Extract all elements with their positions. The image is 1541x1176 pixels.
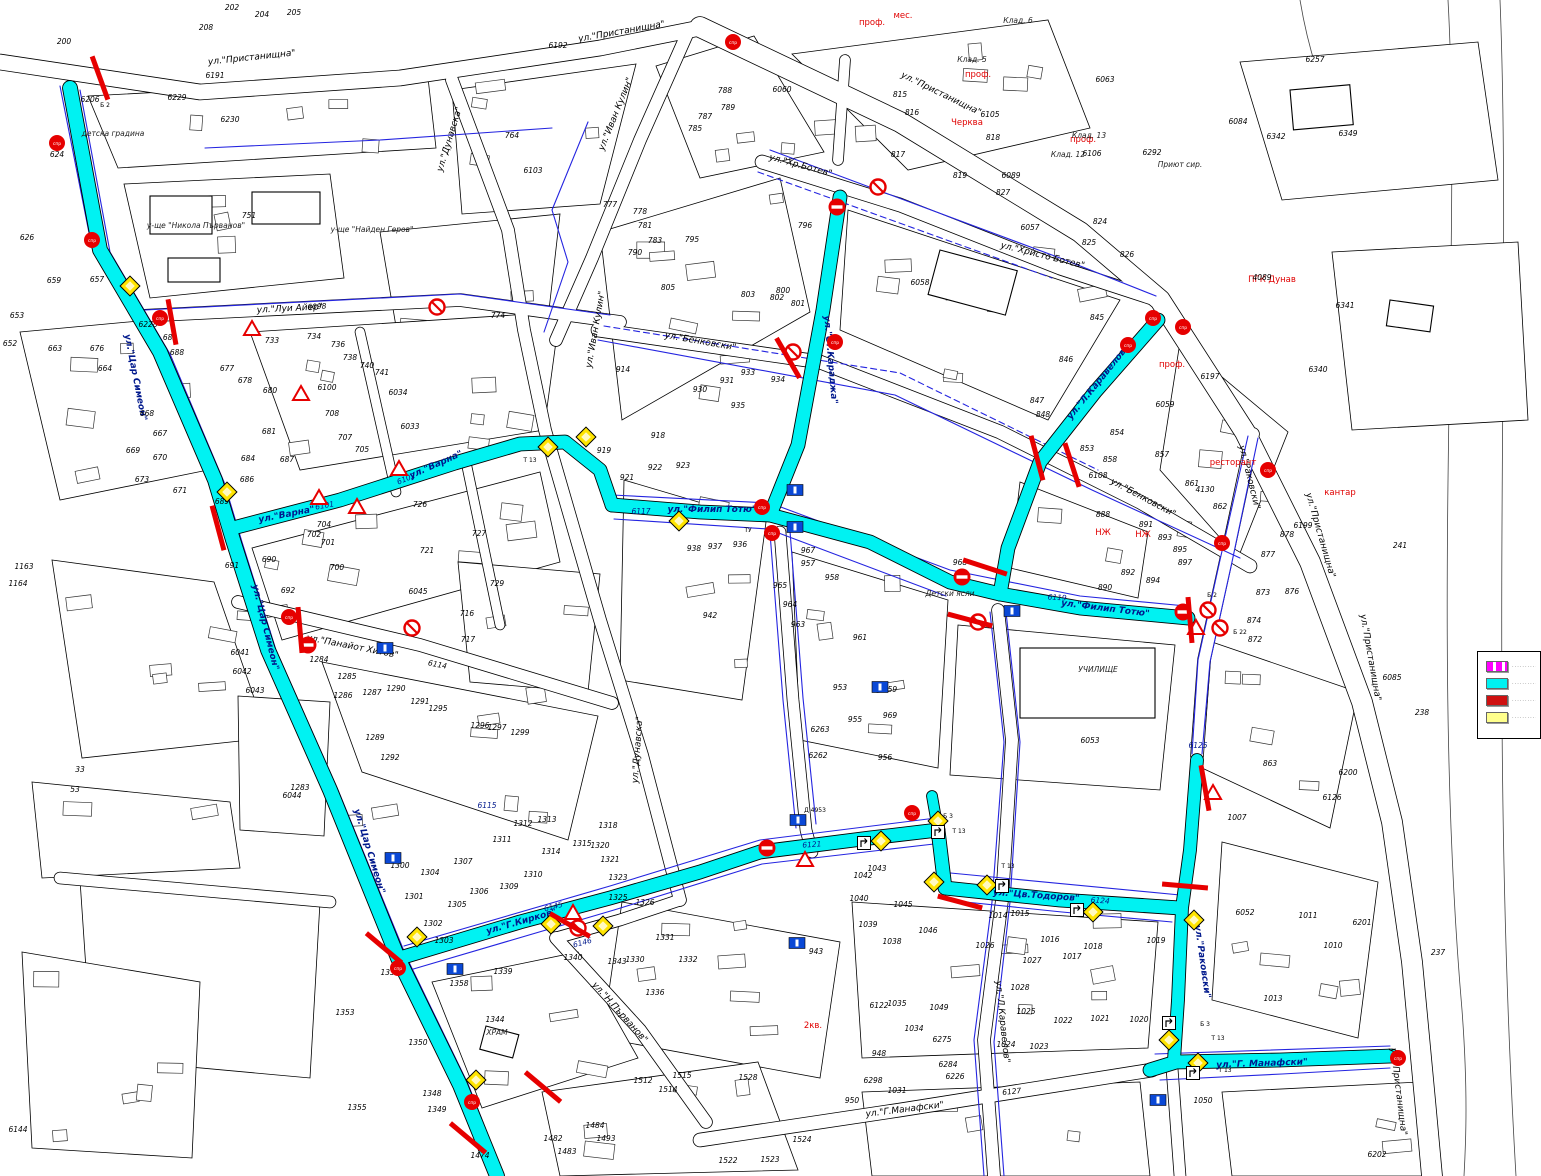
bus-stop-marker: спр	[1214, 535, 1230, 551]
building-outline	[735, 659, 748, 668]
parcel-number: 921	[620, 473, 634, 482]
parcel-number: 204	[255, 10, 270, 19]
parcel-number: 1332	[678, 955, 697, 964]
parcel-number: 6034	[388, 388, 407, 397]
parcel-number: 1011	[1298, 911, 1317, 920]
legend-swatch	[1486, 678, 1508, 689]
parcel-number: 1285	[337, 672, 356, 681]
building-outline	[66, 595, 93, 611]
parcel-number: 817	[891, 150, 906, 159]
building-outline	[472, 377, 496, 393]
parcel-number: 6126	[1322, 793, 1341, 802]
legend-label: ············	[1512, 715, 1536, 721]
parcel-number: 935	[731, 401, 746, 410]
legend-label: ············	[1512, 664, 1536, 670]
building-outline	[1006, 937, 1026, 955]
red-annotation: НЖ	[1095, 528, 1111, 538]
bus-stop-marker: спр	[152, 310, 168, 326]
parcel-number: 6060	[772, 85, 791, 94]
parcel-number: 6045	[408, 587, 427, 596]
parcel-number: 716	[460, 609, 475, 618]
parcel-number: 1023	[1029, 1042, 1048, 1051]
building-outline	[153, 673, 168, 684]
parcel-number: 6262	[808, 751, 827, 760]
parcel-number: 825	[1082, 238, 1097, 247]
building-outline	[750, 1026, 778, 1036]
parcel-number: 1323	[608, 873, 627, 882]
parcel-number: 1020	[1129, 1015, 1148, 1024]
parcel-number: 1043	[867, 864, 886, 873]
building-outline	[198, 682, 225, 692]
street-number: 6191	[205, 71, 224, 80]
parcel-number: 1013	[1263, 994, 1282, 1003]
parcel-number: 824	[1093, 217, 1108, 226]
parcel-number: 6122	[869, 1001, 888, 1010]
building-outline	[356, 514, 378, 529]
parcel-number: 6202	[1367, 1150, 1386, 1159]
building-outline	[1038, 508, 1062, 524]
place-label: Приют сир.	[1158, 160, 1202, 169]
parcel-number: 6033	[400, 422, 419, 431]
parcel-number: 669	[126, 446, 141, 455]
svg-text:спр: спр	[908, 812, 916, 817]
no-entry-sign	[759, 840, 776, 857]
parcel-number: 918	[651, 431, 666, 440]
parcel-number: 202	[225, 3, 240, 12]
no-entry-sign	[829, 199, 846, 216]
bus-stop-marker: спр	[1120, 337, 1136, 353]
building-outline	[306, 360, 320, 373]
parcel-number: 1343	[607, 957, 626, 966]
red-annotation: проф.	[965, 70, 991, 80]
parcel-number: 6292	[1142, 148, 1161, 157]
sign-code-label: Т 13	[1000, 863, 1014, 870]
map-canvas: ул."Цар Симеон"ул."Цар Симеон"ул."Цар Си…	[0, 0, 1541, 1176]
svg-text:спр: спр	[156, 317, 164, 322]
parcel-number: 1312	[513, 819, 532, 828]
parcel-number: 664	[98, 364, 113, 373]
parcel-number: 1320	[590, 841, 609, 850]
parcel-number: 857	[1155, 450, 1170, 459]
parcel-number: 1483	[557, 1147, 576, 1156]
parcel-number: 1027	[1022, 956, 1041, 965]
city-block	[1212, 842, 1378, 1038]
parcel-number: 957	[801, 559, 816, 568]
parcel-number: 692	[281, 586, 296, 595]
no-stopping-sign	[405, 621, 420, 636]
building-outline	[504, 796, 519, 812]
parcel-number: 663	[48, 344, 63, 353]
parcel-number: 777	[603, 200, 618, 209]
street-label: ул."Пристанищна"	[207, 48, 296, 67]
parcel-number: 652	[3, 339, 18, 348]
parcel-number: 942	[703, 611, 718, 620]
legend-item: ············	[1486, 692, 1536, 709]
street-road	[838, 60, 845, 160]
building-outline	[70, 357, 97, 372]
svg-text:спр: спр	[53, 142, 61, 147]
building-outline	[252, 192, 320, 224]
parcel-number: 700	[330, 563, 345, 572]
parcel-number: 717	[461, 635, 476, 644]
parcel-number: 1515	[672, 1071, 691, 1080]
building-outline	[136, 1084, 152, 1101]
parcel-number: 845	[1090, 313, 1105, 322]
bus-stop-marker: спр	[1175, 319, 1191, 335]
parcel-number: 1045	[893, 900, 912, 909]
bus-stop-marker: спр	[725, 34, 741, 50]
parcel-number: 919	[597, 446, 612, 455]
street-number: 6119	[1047, 593, 1067, 603]
parcel-number: 1299	[510, 728, 529, 737]
building-outline	[718, 954, 746, 969]
parcel-number: 1302	[423, 919, 442, 928]
city-block	[32, 782, 240, 878]
parcel-number: 1318	[598, 821, 617, 830]
parcel-number: 6144	[8, 1125, 27, 1134]
parcel-number: 1304	[420, 868, 439, 877]
parcel-number: 1306	[469, 887, 488, 896]
parcel-number: 738	[343, 353, 358, 362]
building-outline	[769, 193, 783, 204]
parcel-number: 1295	[428, 704, 447, 713]
parcel-number: 676	[90, 344, 105, 353]
parcel-number: 681	[262, 427, 276, 436]
parcel-number: 1014	[988, 911, 1007, 920]
parcel-number: 6058	[910, 278, 929, 287]
parcel-number: 1028	[1010, 983, 1029, 992]
legend: ········································…	[1477, 651, 1541, 739]
parcel-number: 787	[698, 112, 713, 121]
parcel-number: 6042	[232, 667, 251, 676]
parcel-number: 1331	[655, 933, 674, 942]
building-outline	[855, 125, 876, 142]
building-outline	[471, 97, 487, 109]
parcel-number: 686	[240, 475, 255, 484]
parcel-number: 1522	[718, 1156, 737, 1165]
sign-code-label: Б 3	[1200, 1021, 1210, 1028]
svg-text:спр: спр	[1264, 469, 1272, 474]
parcel-number: 895	[1173, 545, 1188, 554]
parcel-number: 6200	[1338, 768, 1357, 777]
parcel-number: 897	[1178, 558, 1193, 567]
svg-text:спр: спр	[1179, 326, 1187, 331]
no-entry-sign	[954, 569, 971, 586]
parcel-number: 890	[1098, 583, 1113, 592]
parcel-number: 1049	[929, 1003, 948, 1012]
sign-code-label: Б 2	[1207, 592, 1217, 599]
building-outline	[506, 521, 537, 541]
parcel-number: 1019	[1146, 936, 1165, 945]
red-annotation: кантар	[1324, 488, 1355, 498]
parcel-number: 673	[135, 475, 150, 484]
parcel-number: 6229	[167, 93, 186, 102]
parcel-number: 6263	[810, 725, 829, 734]
parcel-number: 1038	[882, 937, 901, 946]
parcel-number: 953	[833, 683, 848, 692]
parcel-number: 862	[1213, 502, 1228, 511]
parking-sign	[377, 643, 393, 654]
parcel-number: 1025	[1016, 1007, 1035, 1016]
parcel-number: 1021	[1090, 1014, 1109, 1023]
parcel-number: 721	[420, 546, 434, 555]
building-outline	[868, 724, 892, 734]
parcel-number: 734	[307, 332, 322, 341]
street-number: 6121	[802, 839, 822, 849]
parcel-number: 1326	[635, 898, 654, 907]
street-number: 6197	[1200, 372, 1219, 381]
svg-text:спр: спр	[468, 1101, 476, 1106]
parcel-number: 670	[153, 453, 168, 462]
parcel-number: 1355	[347, 1103, 366, 1112]
svg-text:спр: спр	[394, 967, 402, 972]
parcel-number: 705	[355, 445, 370, 454]
sign-code-label: ТУ	[743, 527, 752, 534]
parcel-number: 657	[90, 275, 105, 284]
parking-sign	[787, 485, 803, 496]
street-number: 6117	[631, 507, 650, 516]
sign-code-label: Т 13	[1210, 1035, 1224, 1042]
direction-table-sign	[996, 880, 1009, 893]
parcel-number: 938	[687, 544, 702, 553]
street-number: 6199	[1293, 521, 1312, 530]
red-annotation: мес.	[893, 11, 912, 21]
parcel-number: 741	[375, 368, 389, 377]
parcel-number: 853	[1080, 444, 1095, 453]
legend-label: ············	[1512, 698, 1536, 704]
parcel-number: 1286	[333, 691, 352, 700]
parcel-number: 6103	[523, 166, 542, 175]
parcel-number: 1307	[453, 857, 472, 866]
parcel-number: 854	[1110, 428, 1125, 437]
parking-sign	[872, 682, 888, 693]
parcel-number: 943	[809, 947, 824, 956]
svg-text:спр: спр	[1218, 542, 1226, 547]
parcel-number: 1358	[449, 979, 468, 988]
parcel-number: 659	[47, 276, 62, 285]
bus-stop-marker: спр	[904, 805, 920, 821]
no-stopping-sign	[1201, 603, 1216, 618]
parcel-number: 1164	[8, 579, 27, 588]
parcel-number: 873	[1256, 588, 1271, 597]
red-annotation: проф.	[1159, 360, 1185, 370]
parcel-number: 6043	[245, 686, 264, 695]
no-stopping-sign	[871, 180, 886, 195]
red-annotation: Черква	[951, 118, 983, 128]
svg-text:спр: спр	[768, 532, 776, 537]
place-label: у-ще "Никола Първанов"	[146, 221, 245, 230]
svg-text:спр: спр	[831, 341, 839, 346]
parcel-number: 205	[287, 8, 302, 17]
building-outline	[730, 991, 759, 1002]
building-outline	[1092, 991, 1107, 999]
parcel-number: 961	[853, 633, 867, 642]
parcel-number: 1325	[608, 893, 627, 902]
building-outline	[585, 127, 599, 138]
parcel-number: 958	[825, 573, 840, 582]
street-label: ул."Раковски"	[1192, 925, 1212, 999]
city-block	[1240, 42, 1498, 200]
building-outline	[1382, 1139, 1412, 1154]
building-outline	[157, 1063, 183, 1073]
parcel-number: 729	[490, 579, 505, 588]
parcel-number: 667	[153, 429, 168, 438]
parcel-number: 6275	[932, 1035, 951, 1044]
parcel-number: 1339	[493, 967, 512, 976]
parcel-number: 6298	[863, 1076, 882, 1085]
parcel-number: 1493	[596, 1134, 615, 1143]
parcel-number: 950	[845, 1096, 860, 1105]
parcel-number: 751	[242, 211, 256, 220]
parcel-number: 827	[996, 188, 1011, 197]
svg-text:спр: спр	[729, 41, 737, 46]
building-outline	[287, 107, 304, 120]
parcel-number: 937	[708, 542, 723, 551]
parcel-number: 6341	[1335, 301, 1354, 310]
building-outline	[218, 236, 236, 253]
parcel-number: 1007	[1227, 813, 1246, 822]
parcel-number: 6201	[1352, 918, 1371, 927]
bus-stop-marker: спр	[827, 334, 843, 350]
parcel-number: 818	[986, 133, 1001, 142]
parcel-number: 878	[1280, 530, 1295, 539]
parcel-number: 6063	[1095, 75, 1114, 84]
parcel-number: 1482	[543, 1134, 562, 1143]
parcel-number: 914	[616, 365, 631, 374]
building-outline	[637, 967, 656, 982]
parcel-number: 1348	[422, 1089, 441, 1098]
parcel-number: 1010	[1323, 941, 1342, 950]
parcel-number: 923	[676, 461, 691, 470]
parcel-number: 785	[688, 124, 703, 133]
building-outline	[649, 251, 674, 262]
parcel-number: 1315	[572, 839, 591, 848]
parcel-number: 1289	[365, 733, 384, 742]
parcel-number: 803	[741, 290, 756, 299]
parking-sign	[1150, 1095, 1166, 1106]
building-outline	[52, 1130, 67, 1142]
building-outline	[736, 132, 754, 143]
parcel-number: 922	[648, 463, 663, 472]
city-map[interactable]: ул."Цар Симеон"ул."Цар Симеон"ул."Цар Си…	[0, 0, 1541, 1176]
parcel-number: 1305	[447, 900, 466, 909]
building-outline	[471, 976, 492, 991]
place-label: Клад. 5	[957, 55, 987, 64]
building-outline	[1225, 671, 1241, 684]
building-outline	[1003, 77, 1028, 91]
parcel-number: 872	[1248, 635, 1263, 644]
building-outline	[817, 622, 833, 640]
parcel-number: 1031	[887, 1086, 906, 1095]
direction-table-sign	[1187, 1067, 1200, 1080]
parcel-number: 6257	[1305, 55, 1324, 64]
parcel-number: 1330	[625, 955, 644, 964]
parcel-number: 1301	[404, 892, 423, 901]
parcel-number: 6059	[1155, 400, 1174, 409]
bus-stop-marker: спр	[764, 525, 780, 541]
parcel-number: 6230	[220, 115, 239, 124]
parcel-number: 1310	[523, 870, 542, 879]
city-block	[602, 902, 840, 1078]
parcel-number: 53	[70, 785, 80, 794]
parcel-number: 6089	[1001, 171, 1020, 180]
place-label: детска градина	[81, 129, 145, 138]
building-outline	[66, 408, 95, 428]
parcel-number: 691	[225, 561, 239, 570]
parcel-number: 933	[741, 368, 756, 377]
legend-item: ············	[1486, 709, 1536, 726]
parcel-number: 1018	[1083, 942, 1102, 951]
building-outline	[1339, 979, 1360, 996]
parking-sign	[790, 815, 806, 826]
red-annotation: проф.	[859, 18, 885, 28]
bus-stop-marker: спр	[754, 499, 770, 515]
building-outline	[289, 440, 310, 456]
street-number: 6115	[477, 801, 496, 810]
parcel-number: 208	[199, 23, 214, 32]
parcel-number: 6349	[1338, 129, 1357, 138]
building-outline	[1260, 953, 1290, 968]
parcel-number: 894	[1146, 576, 1161, 585]
parcel-number: 892	[1121, 568, 1136, 577]
parcel-number: 1034	[904, 1024, 923, 1033]
parcel-number: 1528	[738, 1073, 757, 1082]
parcel-number: 238	[1415, 708, 1430, 717]
bus-stop-marker: спр	[281, 609, 297, 625]
parcel-number: 790	[628, 248, 643, 257]
building-outline	[1027, 65, 1043, 79]
parcel-number: 1284	[309, 655, 328, 664]
parcel-number: 930	[693, 385, 708, 394]
building-outline	[168, 258, 220, 282]
svg-text:спр: спр	[1394, 1057, 1402, 1062]
svg-text:спр: спр	[1124, 344, 1132, 349]
building-outline	[728, 575, 750, 584]
parcel-number: 1017	[1062, 952, 1081, 961]
svg-text:спр: спр	[285, 616, 293, 621]
building-outline	[584, 1141, 615, 1159]
parcel-number: 815	[893, 90, 908, 99]
parcel-number: 967	[801, 546, 816, 555]
place-label: Клад. 13	[1072, 131, 1106, 140]
parcel-number: 934	[771, 375, 786, 384]
parcel-number: 1297	[487, 723, 506, 732]
parcel-number: 1016	[1040, 935, 1059, 944]
parcel-number: 783	[648, 236, 663, 245]
bus-stop-marker: спр	[49, 135, 65, 151]
parcel-number: 1474	[470, 1151, 489, 1160]
parcel-number: 4089	[1252, 273, 1271, 282]
parcel-number: 6044	[282, 791, 301, 800]
street-number: 6125	[1188, 741, 1207, 750]
bus-stop-marker: спр	[464, 1094, 480, 1110]
parcel-number: 680	[263, 386, 278, 395]
parcel-number: 6342	[1266, 132, 1285, 141]
sign-code-label: Б 2	[100, 102, 110, 109]
parcel-number: 816	[905, 108, 920, 117]
building-outline	[190, 115, 203, 131]
parcel-number: 33	[75, 765, 85, 774]
city-block	[1332, 242, 1528, 430]
parcel-number: 1026	[975, 941, 994, 950]
sign-code-label: Т 13	[1217, 1067, 1231, 1074]
parcel-number: 955	[848, 715, 863, 724]
building-outline	[1290, 85, 1353, 130]
parcel-number: 774	[491, 311, 506, 320]
parcel-number: 848	[1036, 410, 1051, 419]
parcel-number: 626	[20, 233, 35, 242]
building-outline	[1020, 648, 1155, 718]
